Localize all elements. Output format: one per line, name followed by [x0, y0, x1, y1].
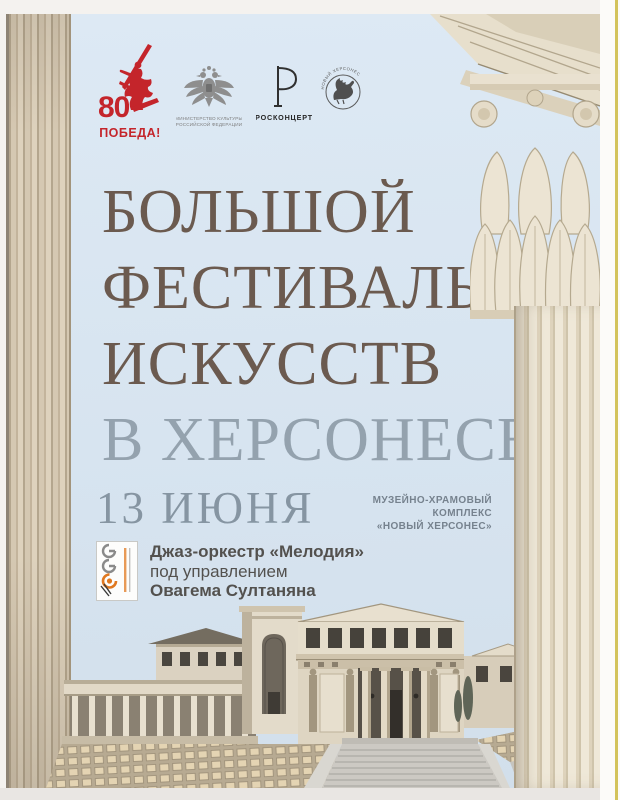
venue-line-1: МУЗЕЙНО-ХРАМОВЫЙ	[336, 494, 492, 507]
ministry-name-line1: МИНИСТЕРСТВО КУЛЬТУРЫ	[176, 116, 242, 121]
colonnade	[62, 680, 258, 744]
corinthian-capital	[470, 64, 600, 319]
title-line-3: ИСКУССТВ	[102, 326, 536, 402]
orchestra-logo-icon	[97, 542, 137, 600]
main-hall	[296, 604, 464, 744]
new-chersonese-emblem: НОВЫЙ ХЕРСОНЕС	[316, 58, 370, 124]
rosconcert-monogram-icon: РОСКОНЦЕРТ	[256, 62, 312, 130]
rosconcert-label: РОСКОНЦЕРТ	[256, 113, 312, 122]
victory-80-number: 80	[98, 92, 129, 124]
ministry-name-line2: РОССИЙСКОЙ ФЕДЕРАЦИИ	[176, 120, 242, 127]
right-column-shaft	[514, 306, 600, 788]
venue-building-illustration	[6, 594, 600, 788]
title-line-4: В ХЕРСОНЕСЕ	[102, 402, 536, 478]
orchestra-logo	[96, 541, 138, 601]
festival-poster: 80 ПОБЕДА! МИНИСТЕРС	[6, 14, 600, 788]
right-accent-line	[615, 0, 618, 800]
venue-line-2: КОМПЛЕКС	[336, 507, 492, 520]
tower	[239, 606, 305, 734]
double-headed-eagle-icon: МИНИСТЕРСТВО КУЛЬТУРЫ РОССИЙСКОЙ ФЕДЕРАЦ…	[176, 62, 242, 134]
program-block: Джаз-оркестр «Мелодия» под управлением О…	[150, 542, 364, 601]
ministry-of-culture-logo: МИНИСТЕРСТВО КУЛЬТУРЫ РОССИЙСКОЙ ФЕДЕРАЦ…	[176, 62, 242, 134]
rosconcert-logo: РОСКОНЦЕРТ	[256, 62, 312, 130]
program-conductor-intro: под управлением	[150, 562, 364, 582]
victory-80-badge: 80 ПОБЕДА!	[94, 44, 166, 144]
victory-80-label: ПОБЕДА!	[94, 126, 166, 140]
griffin-icon: НОВЫЙ ХЕРСОНЕС	[316, 58, 370, 124]
venue-name: МУЗЕЙНО-ХРАМОВЫЙ КОМПЛЕКС «НОВЫЙ ХЕРСОНЕ…	[336, 494, 492, 533]
program-orchestra: Джаз-оркестр «Мелодия»	[150, 542, 364, 562]
event-date: 13 ИЮНЯ	[96, 482, 315, 534]
venue-line-3: «НОВЫЙ ХЕРСОНЕС»	[336, 520, 492, 533]
bottom-margin-strip	[0, 788, 620, 800]
screenshot-canvas: 80 ПОБЕДА! МИНИСТЕРС	[0, 0, 620, 800]
